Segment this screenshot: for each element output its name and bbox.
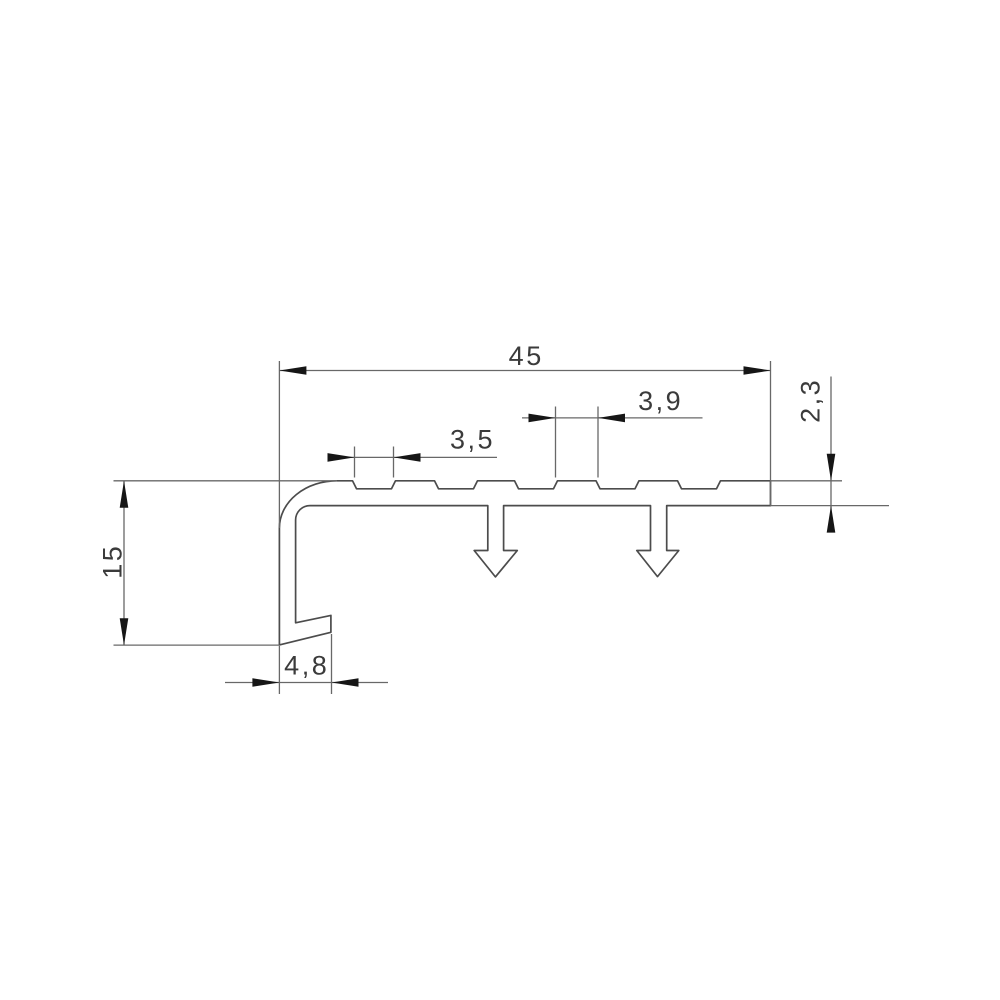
svg-text:15: 15: [97, 544, 127, 579]
svg-text:3,9: 3,9: [638, 386, 683, 416]
svg-text:3,5: 3,5: [450, 425, 495, 455]
svg-text:2,3: 2,3: [795, 378, 825, 423]
svg-text:45: 45: [509, 341, 544, 371]
svg-text:4,8: 4,8: [284, 650, 329, 680]
